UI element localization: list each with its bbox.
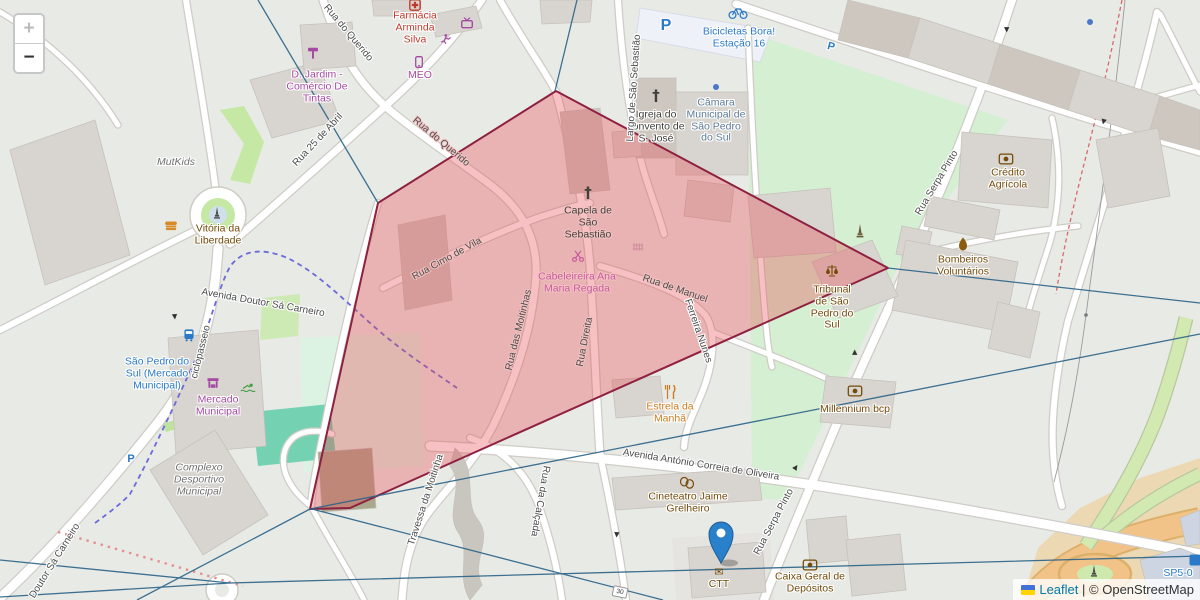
zoom-control: + − [13,13,45,74]
osm-copyright: © OpenStreetMap [1089,582,1194,597]
attribution-bar: Leaflet | © OpenStreetMap [1013,579,1200,600]
map-canvas [0,0,1200,600]
attribution-separator: | [1082,582,1085,597]
ukraine-flag-icon [1021,585,1035,595]
leaflet-map[interactable]: † † ✉ ▲ ▲ ▲ ▲ ▲ ▲ Farmácia Arminda Silva… [0,0,1200,600]
leaflet-link[interactable]: Leaflet [1039,582,1078,597]
zoom-in-button[interactable]: + [15,15,43,44]
zoom-out-button[interactable]: − [15,44,43,72]
